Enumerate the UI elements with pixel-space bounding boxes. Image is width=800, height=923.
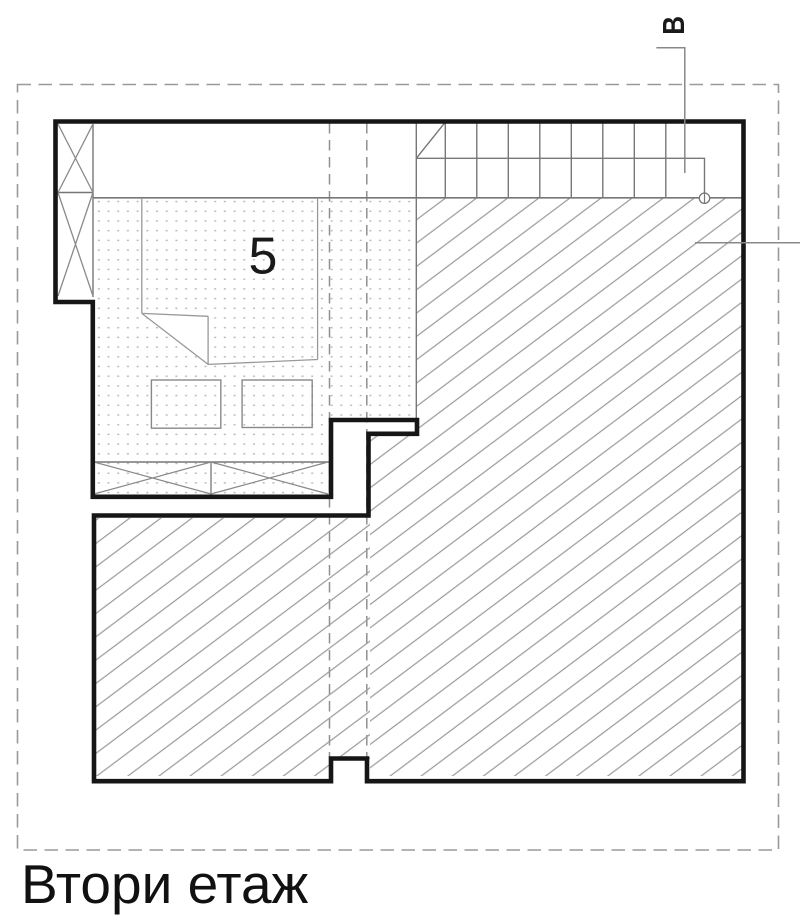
svg-text:5: 5 (249, 228, 278, 286)
svg-text:Втори етаж: Втори етаж (21, 853, 309, 915)
svg-text:В: В (657, 16, 692, 35)
